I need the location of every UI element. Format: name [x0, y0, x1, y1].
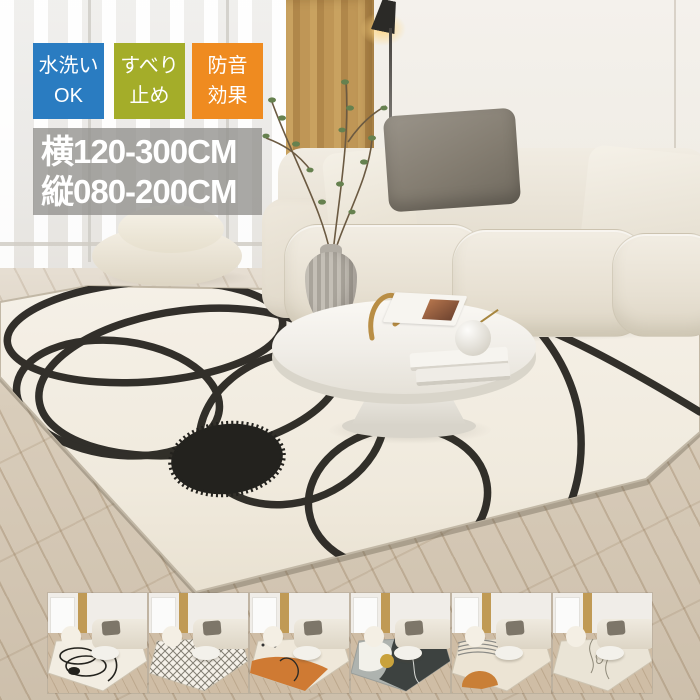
thumb-table	[596, 646, 625, 660]
thumb-pouf	[364, 626, 384, 647]
thumb-pillow	[102, 621, 121, 636]
sphere-decor	[455, 320, 491, 356]
variant-thumbnail-strip	[48, 593, 654, 693]
variant-thumb-thin-line-rug[interactable]	[553, 593, 652, 693]
variant-thumb-diamond-lattice-rug[interactable]	[149, 593, 248, 693]
size-height-range: 縦080-200CM	[41, 172, 262, 212]
thumb-pillow	[203, 621, 222, 636]
variant-thumb-orange-wave-rug[interactable]	[250, 593, 349, 693]
badge-text: OK	[33, 81, 104, 111]
badge-text: すべり	[114, 51, 185, 81]
thumb-table	[293, 646, 322, 660]
thumb-sofa	[496, 619, 551, 649]
size-width-range: 横120-300CM	[41, 132, 262, 172]
thumb-sofa	[395, 619, 450, 649]
variant-thumb-orange-arc-stripe-rug[interactable]	[452, 593, 551, 693]
thumb-table	[394, 646, 423, 660]
thumb-sofa	[294, 619, 349, 649]
badge-text: 水洗い	[33, 51, 104, 81]
product-image: 水洗い OK すべり 止め 防音 効果 横120-300CM 縦080-200C…	[0, 0, 700, 700]
variant-thumb-black-line-rug[interactable]	[48, 593, 147, 693]
thumb-pouf	[263, 626, 283, 647]
branch-plant	[252, 52, 392, 267]
soundproof-badge: 防音 効果	[192, 43, 263, 119]
thumb-pouf	[566, 626, 586, 647]
thumb-pouf	[61, 626, 81, 647]
badge-text: 防音	[192, 51, 263, 81]
thumb-table	[192, 646, 221, 660]
thumb-table	[91, 646, 120, 660]
thumb-pillow	[607, 621, 626, 636]
badge-text: 効果	[192, 81, 263, 111]
anti-slip-badge: すべり 止め	[114, 43, 185, 119]
thumb-pouf	[162, 626, 182, 647]
variant-thumb-charcoal-abstract-rug[interactable]	[351, 593, 450, 693]
thumb-pillow	[304, 621, 323, 636]
thumb-sofa	[92, 619, 147, 649]
magazine-photo	[422, 299, 460, 321]
thumb-pillow	[405, 621, 424, 636]
badge-text: 止め	[114, 81, 185, 111]
gray-textured-pillow	[383, 108, 521, 213]
magazine	[383, 292, 468, 326]
size-label: 横120-300CM 縦080-200CM	[33, 128, 262, 215]
thumb-pillow	[506, 621, 525, 636]
thumb-table	[495, 646, 524, 660]
washable-badge: 水洗い OK	[33, 43, 104, 119]
sofa-seat-cushion	[612, 233, 700, 337]
thumb-pouf	[465, 626, 485, 647]
thumb-sofa	[597, 619, 652, 649]
thumb-sofa	[193, 619, 248, 649]
